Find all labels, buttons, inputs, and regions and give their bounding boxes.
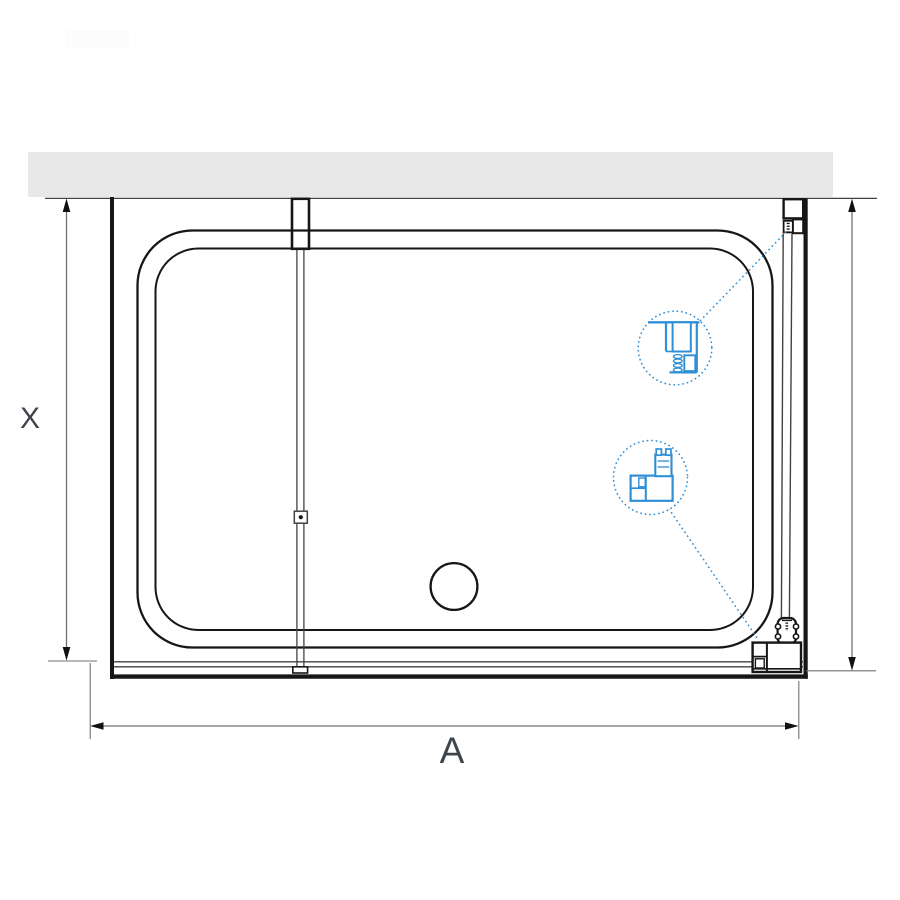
dim-a-arrow-right	[785, 722, 799, 730]
technical-drawing-canvas: X A	[0, 0, 900, 900]
dim-right-arrow-bottom	[848, 657, 856, 671]
dim-right-arrow-top	[848, 199, 856, 212]
dimension-x-label: X	[13, 404, 47, 434]
wall-strip	[28, 152, 833, 197]
drain	[431, 563, 478, 610]
dimension-right	[806, 199, 876, 671]
tray-front-lip	[114, 662, 803, 667]
dim-x-arrow-bottom	[63, 647, 71, 661]
dimension-x	[48, 199, 97, 662]
dim-x-arrow-top	[63, 199, 71, 213]
fixed-glass-panel	[781, 234, 792, 619]
glass-clamp-profile	[775, 618, 798, 644]
wall-mount-bracket	[784, 199, 804, 233]
dimension-a-label: A	[431, 732, 473, 769]
callout-floor-bracket	[614, 441, 759, 641]
partition-wall-bracket	[292, 199, 309, 249]
partition-end-cap	[293, 667, 308, 673]
callout-leader-bottom	[669, 509, 759, 640]
dim-a-arrow-left	[90, 722, 104, 730]
floor-bracket	[753, 643, 801, 672]
glass-partition	[292, 199, 309, 673]
partition-connector-dot	[299, 515, 303, 519]
